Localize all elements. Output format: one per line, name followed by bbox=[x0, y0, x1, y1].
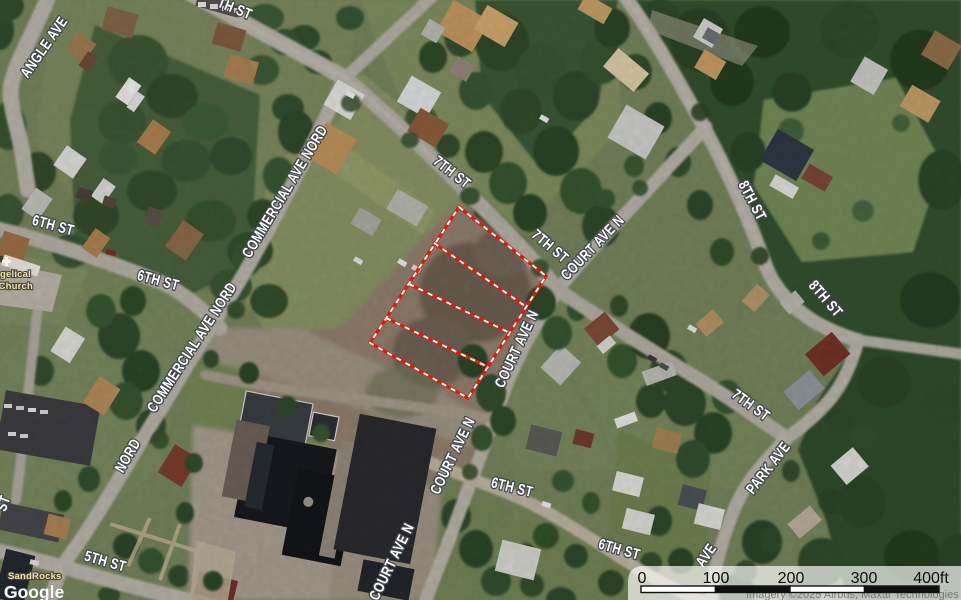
svg-text:e Church: e Church bbox=[0, 281, 33, 292]
svg-text:300: 300 bbox=[851, 570, 878, 587]
svg-text:400ft: 400ft bbox=[913, 570, 949, 587]
svg-text:200: 200 bbox=[778, 570, 805, 587]
svg-text:ngelical: ngelical bbox=[0, 269, 31, 280]
svg-text:SandRocks: SandRocks bbox=[8, 571, 62, 582]
svg-text:100: 100 bbox=[703, 570, 730, 587]
svg-text:0: 0 bbox=[638, 570, 647, 587]
svg-text:Google: Google bbox=[4, 582, 65, 600]
